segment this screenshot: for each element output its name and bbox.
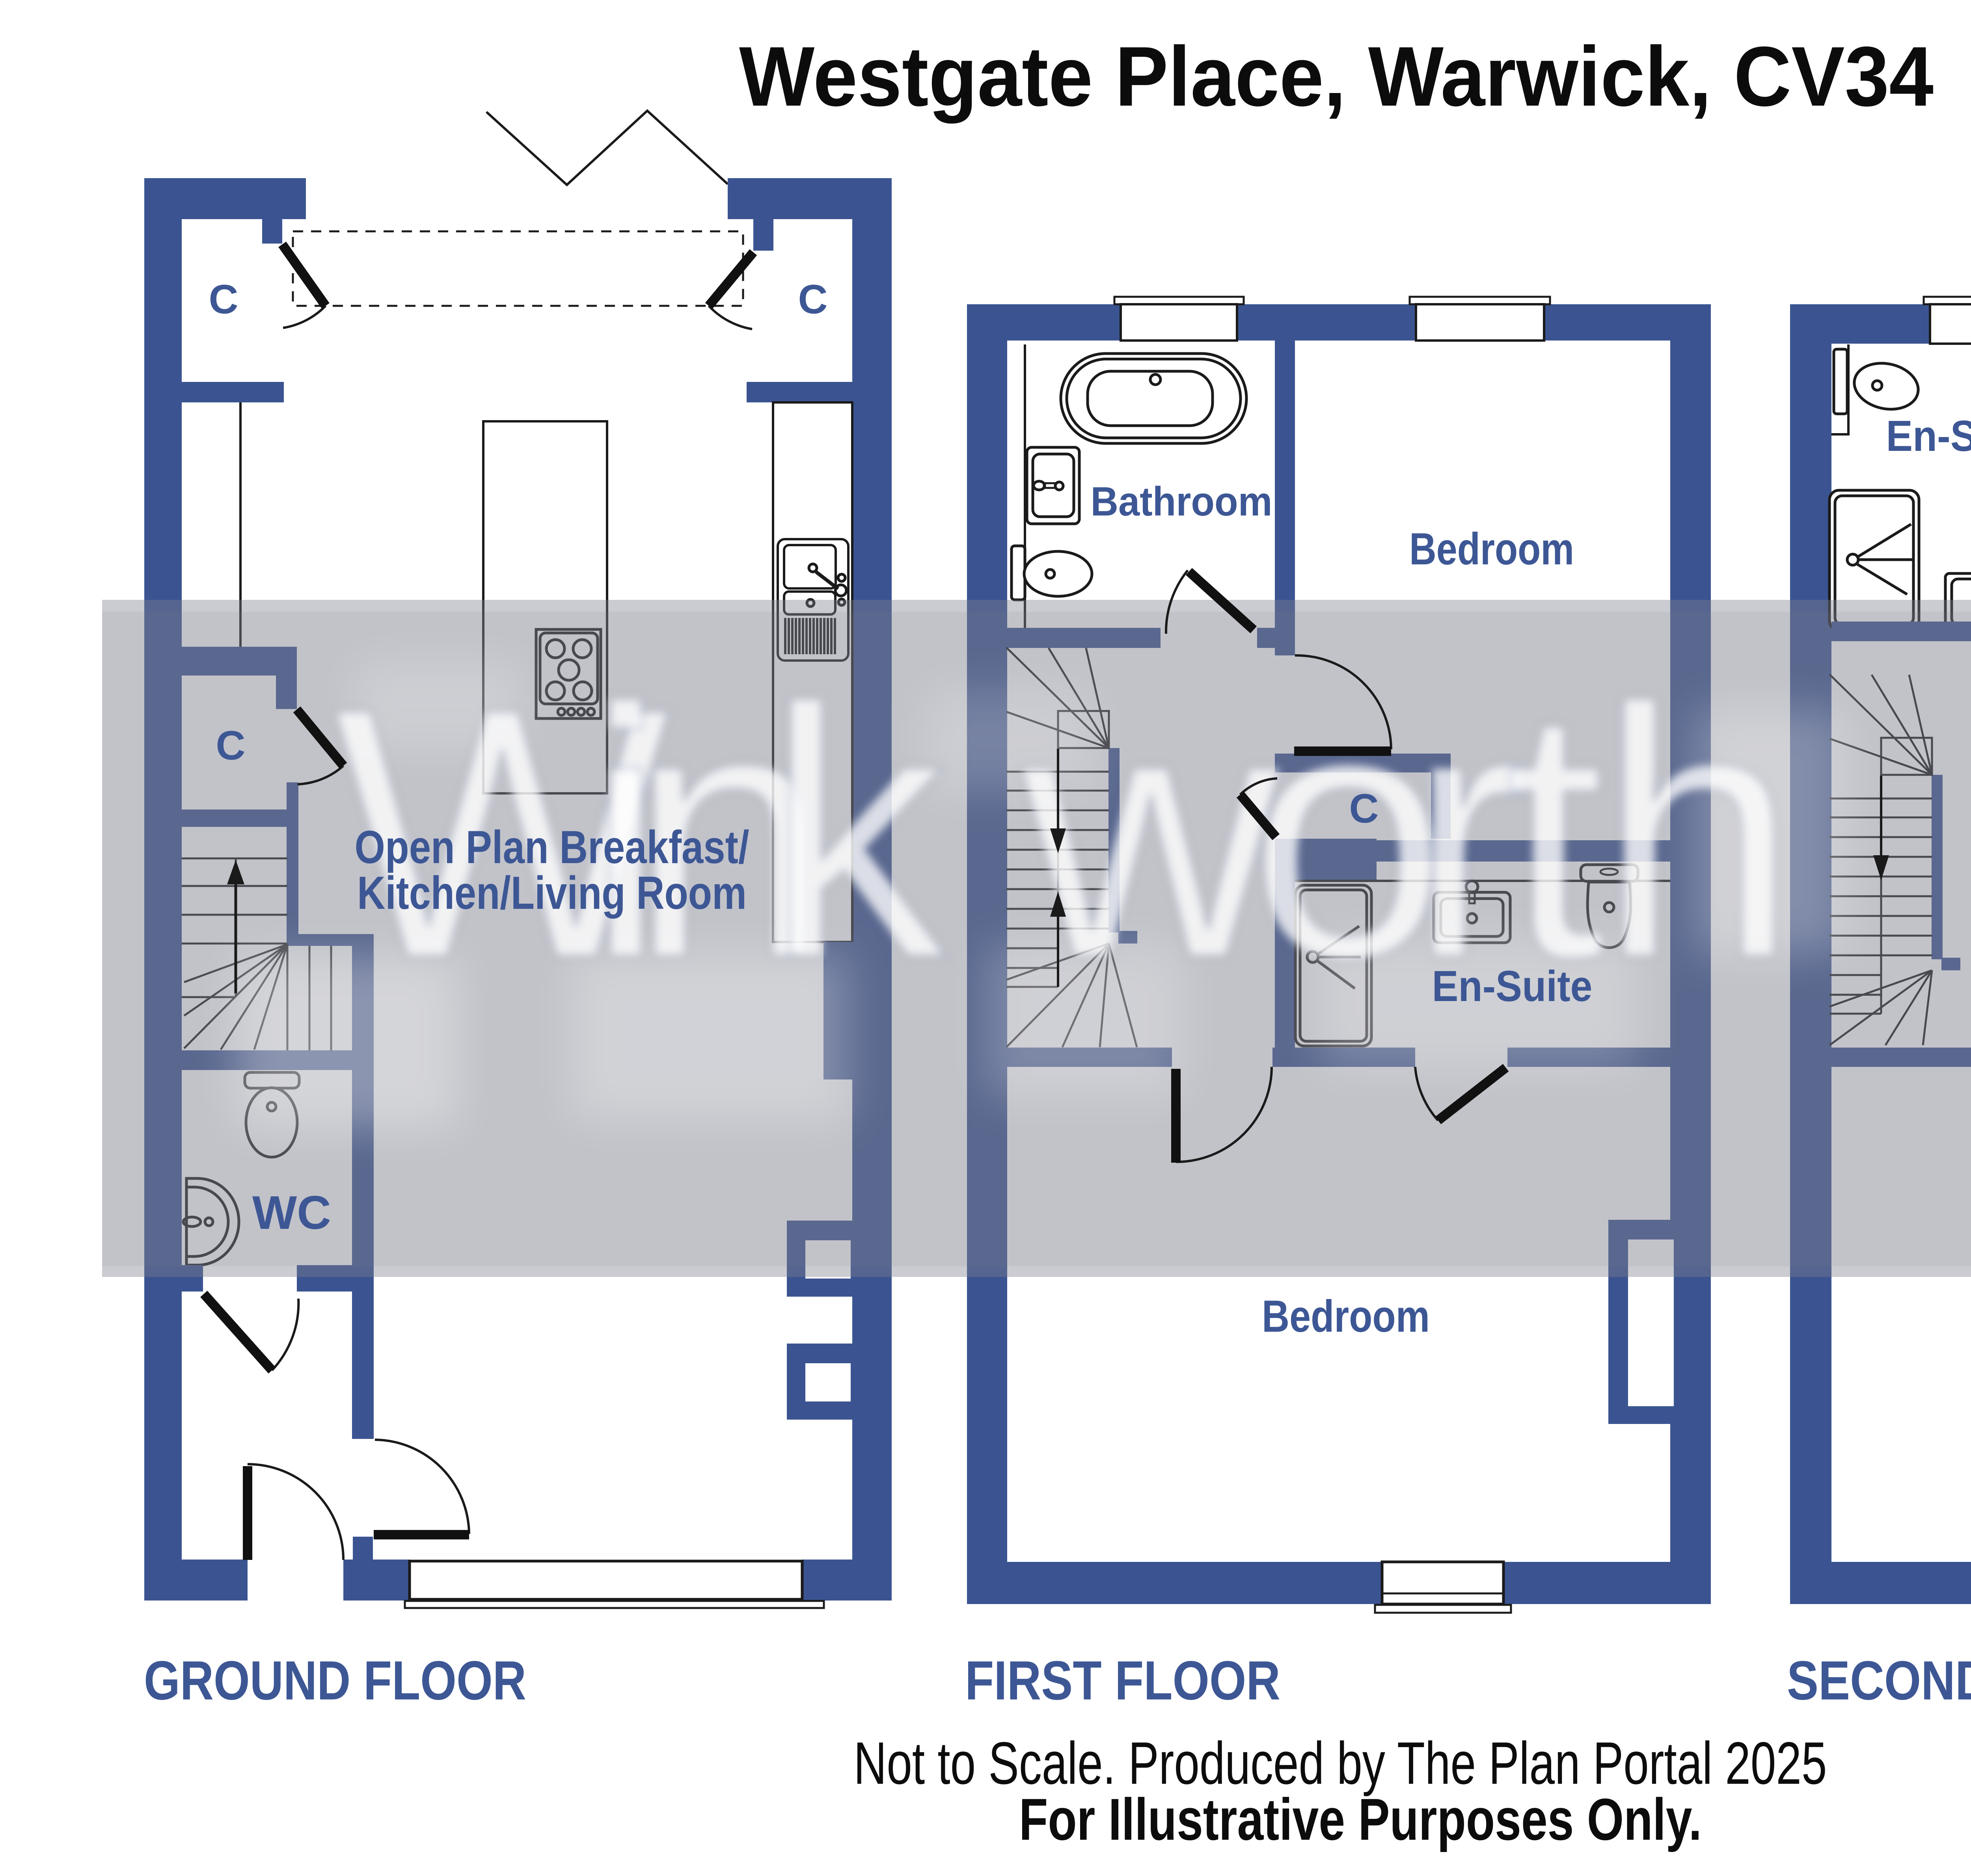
svg-text:For Illustrative Purposes Only: For Illustrative Purposes Only. [1019, 1786, 1702, 1852]
svg-text:En-Suite: En-Suite [1432, 962, 1593, 1011]
svg-text:C: C [216, 723, 245, 769]
svg-text:Bedroom: Bedroom [1409, 524, 1574, 574]
svg-text:C: C [209, 277, 238, 322]
svg-text:Bathroom: Bathroom [1091, 479, 1272, 525]
svg-text:En-Suite: En-Suite [1886, 412, 1971, 460]
svg-text:WC: WC [252, 1186, 331, 1239]
svg-text:h: h [1599, 635, 1797, 1031]
svg-text:SECOND FLOOR: SECOND FLOOR [1787, 1649, 1971, 1711]
svg-text:GROUND FLOOR: GROUND FLOOR [144, 1649, 526, 1711]
svg-text:k: k [767, 635, 950, 1031]
svg-text:Westgate Place, Warwick, CV34: Westgate Place, Warwick, CV34 [739, 29, 1934, 124]
svg-text:Open Plan Breakfast/: Open Plan Breakfast/ [355, 821, 749, 873]
svg-text:C: C [798, 277, 827, 322]
svg-text:FIRST FLOOR: FIRST FLOOR [965, 1649, 1280, 1711]
svg-text:C: C [1349, 786, 1379, 832]
svg-text:Kitchen/Living Room: Kitchen/Living Room [357, 867, 747, 919]
svg-text:Bedroom: Bedroom [1262, 1292, 1430, 1342]
